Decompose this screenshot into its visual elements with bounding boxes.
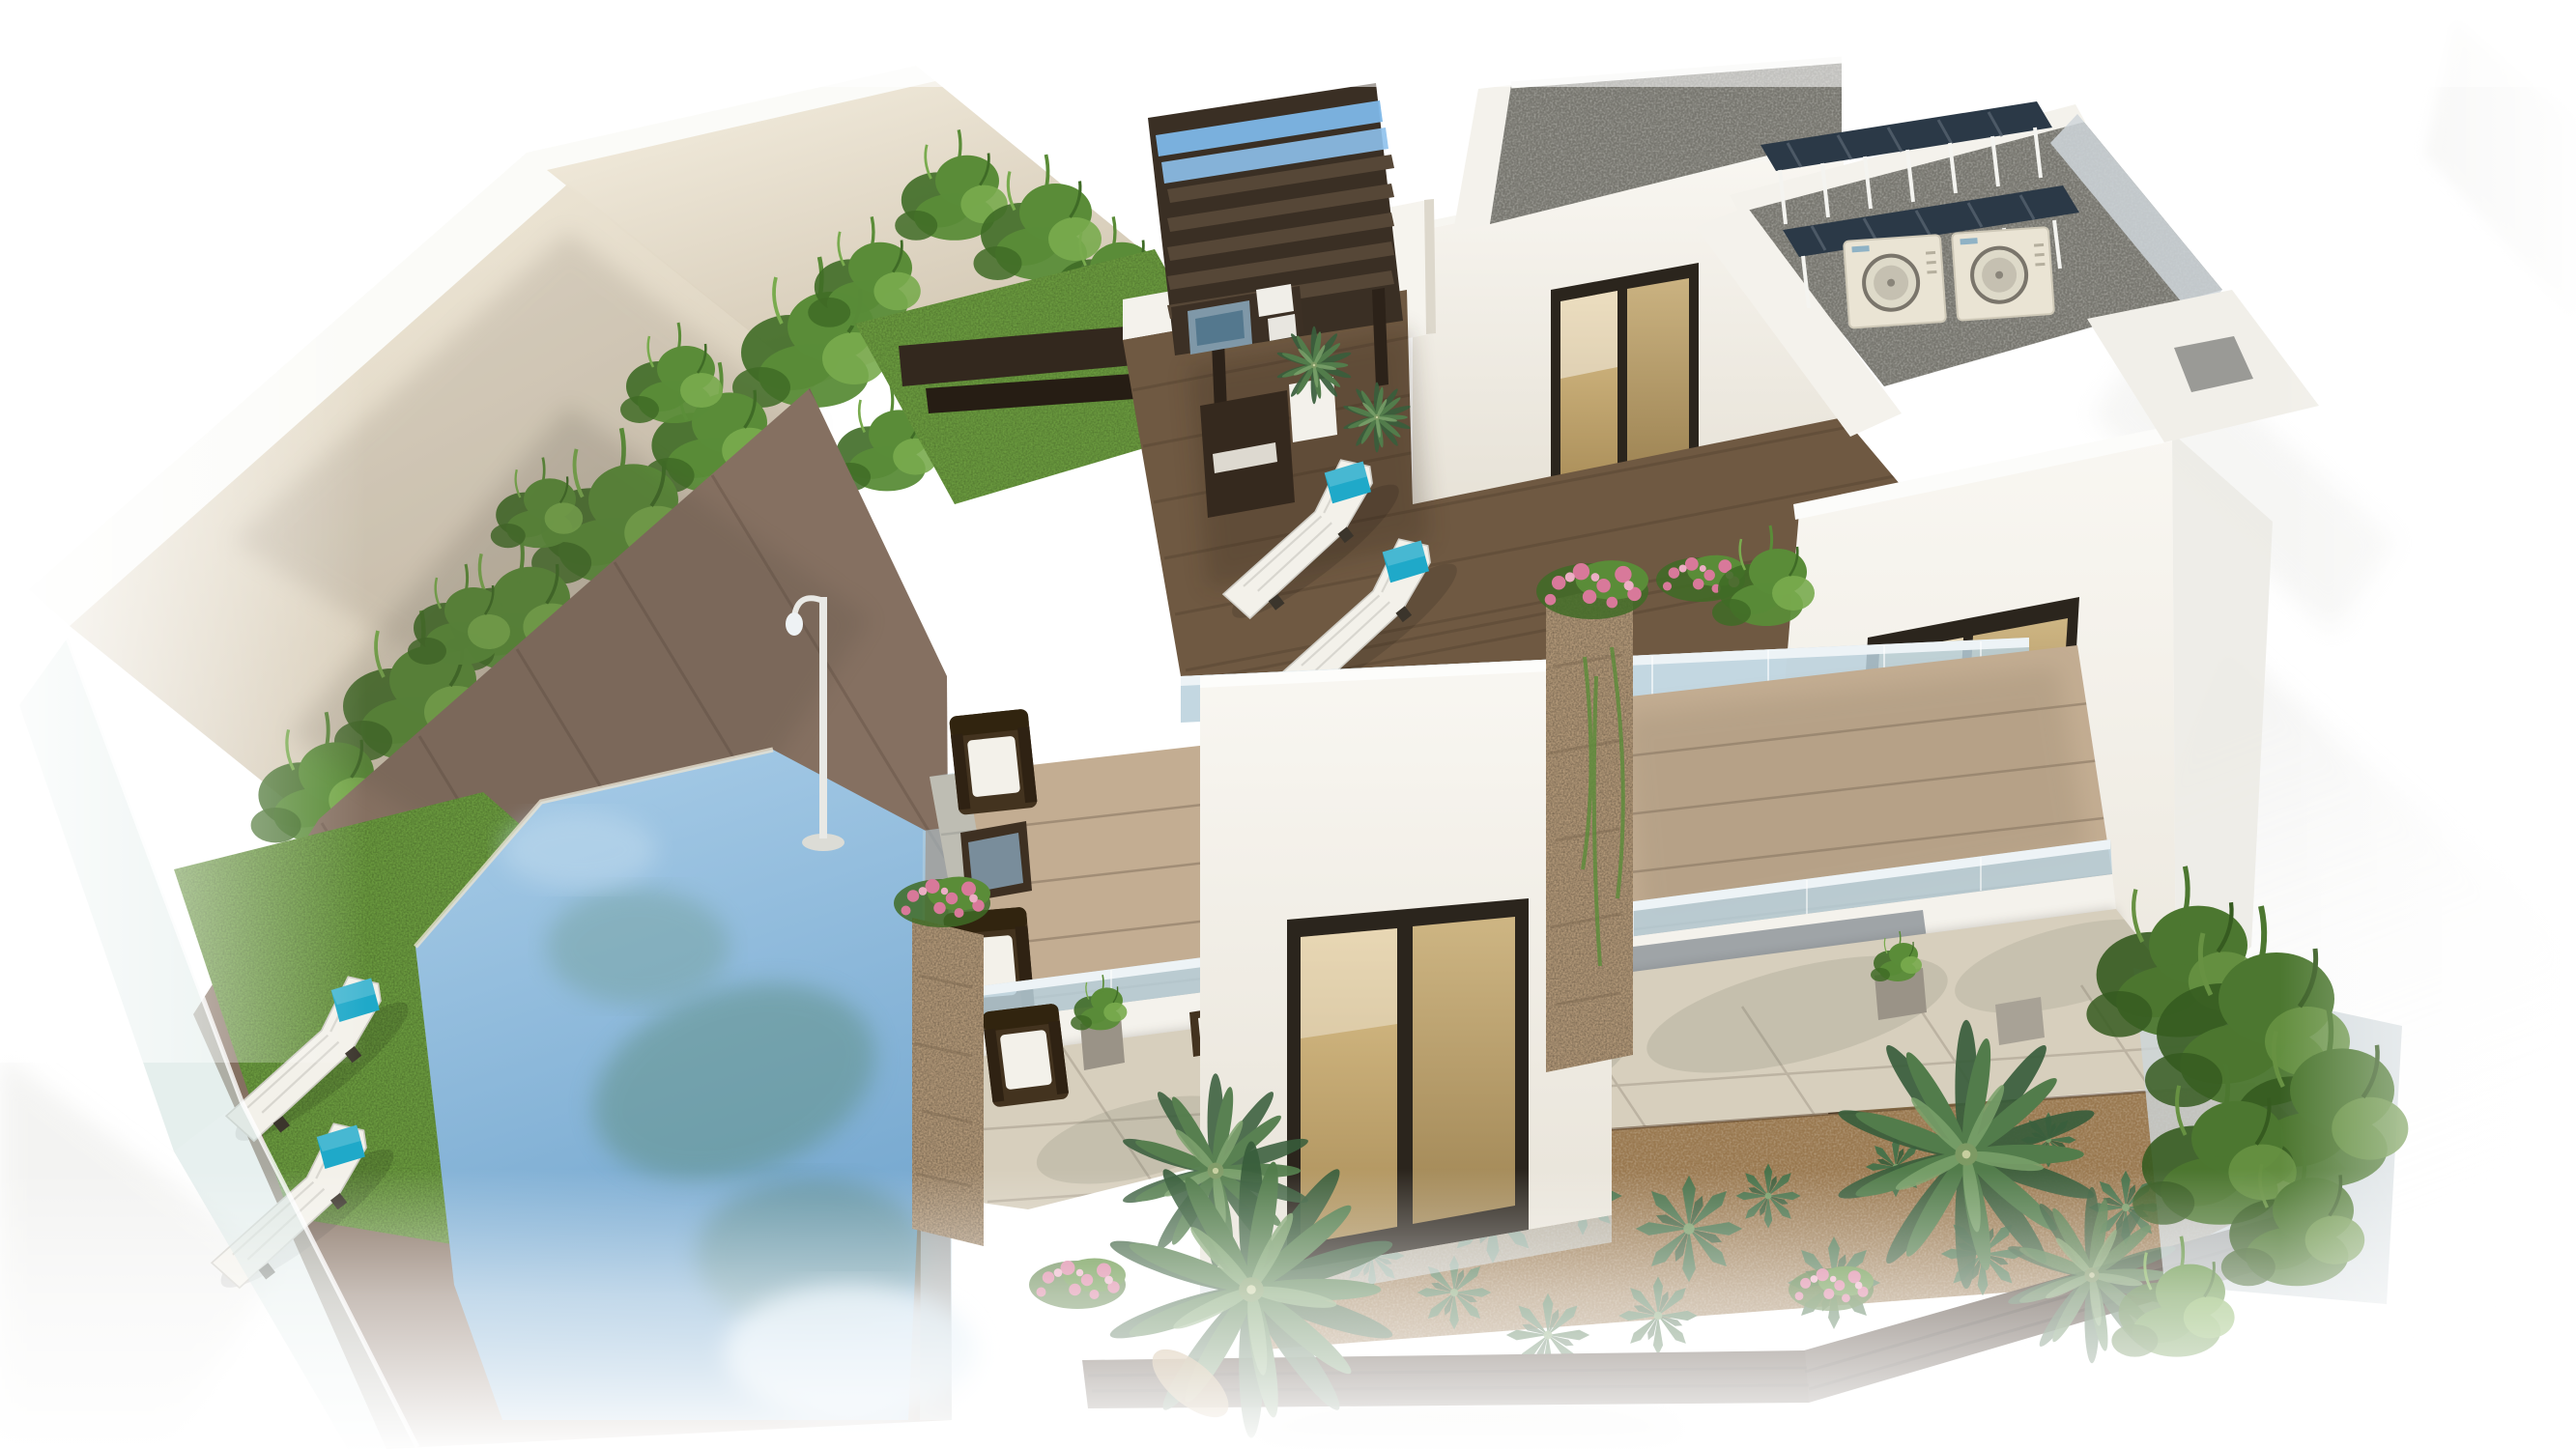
ac-unit-2 [1952,227,2054,321]
bottom-fade [0,1169,2576,1449]
ac-unit-1 [1844,235,1946,328]
lamp-head [786,612,803,636]
patio-planter [1995,997,2045,1045]
window-glare [1560,291,1617,379]
chimney-shade [1424,199,1436,334]
door-glare [1301,928,1397,1038]
kitchen-appliance [1256,284,1294,317]
left-fade [0,0,367,1063]
render-canvas [0,0,2576,1449]
terrace-armchair [949,708,1038,815]
villa-render [0,0,2576,1449]
top-fade [0,0,2576,87]
right-fade [2280,0,2576,1449]
patio-armchair [982,1003,1070,1107]
